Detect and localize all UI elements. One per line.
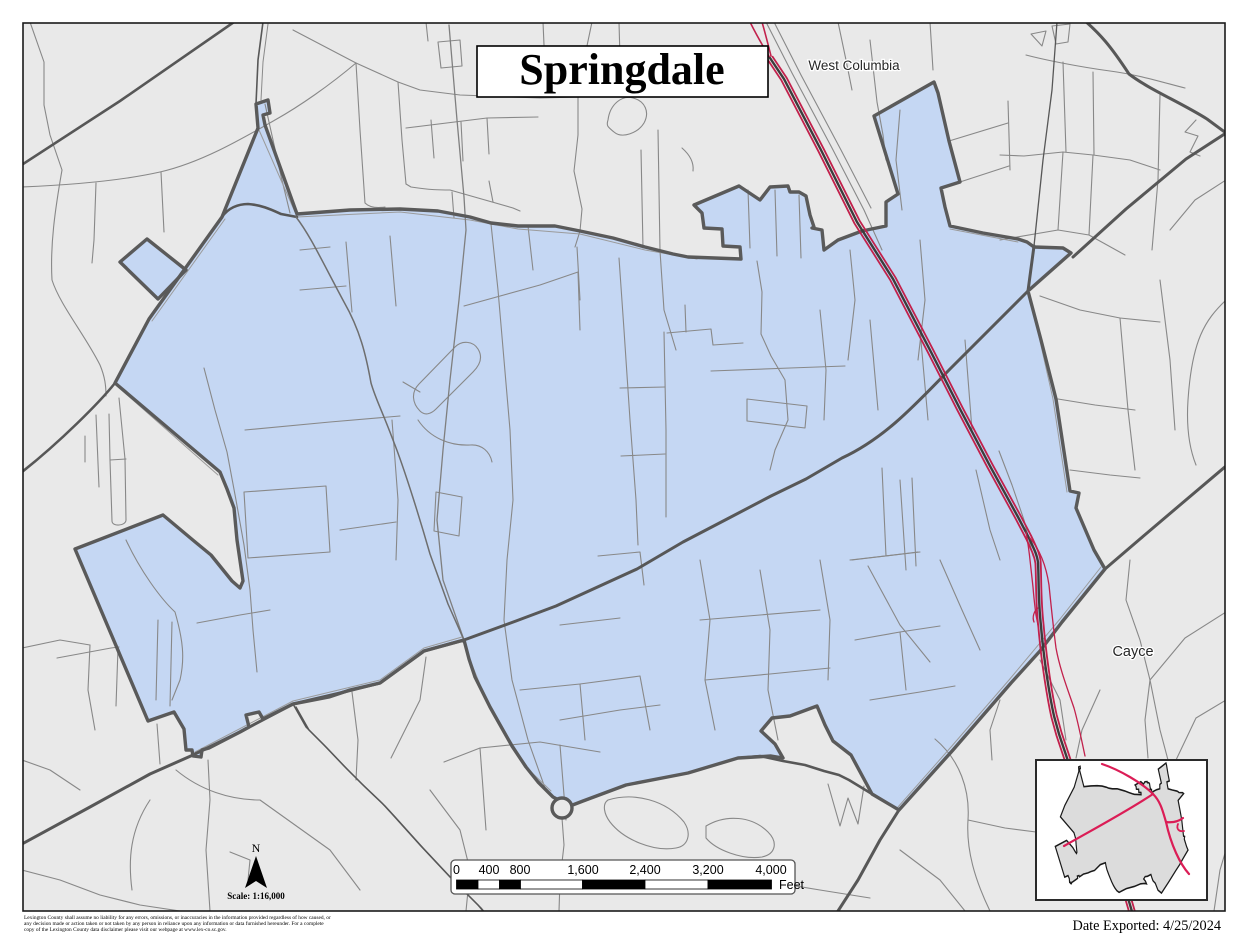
svg-text:Springdale: Springdale <box>519 45 724 94</box>
svg-text:4,000: 4,000 <box>755 863 786 877</box>
svg-text:1,600: 1,600 <box>567 863 598 877</box>
svg-text:Lexington County shall assume: Lexington County shall assume no liabili… <box>24 914 331 921</box>
svg-text:any decision made or action ta: any decision made or action taken or not… <box>24 920 324 927</box>
svg-text:Scale: 1:16,000: Scale: 1:16,000 <box>227 891 285 901</box>
svg-text:400: 400 <box>479 863 500 877</box>
svg-text:2,400: 2,400 <box>629 863 660 877</box>
svg-text:800: 800 <box>510 863 531 877</box>
svg-text:3,200: 3,200 <box>692 863 723 877</box>
svg-text:0: 0 <box>453 863 460 877</box>
svg-text:Date Exported: 4/25/2024: Date Exported: 4/25/2024 <box>1073 918 1222 934</box>
svg-text:N: N <box>252 841 261 855</box>
svg-text:West Columbia: West Columbia <box>808 58 900 73</box>
svg-text:copy of the Lexington County d: copy of the Lexington County data discla… <box>24 926 227 933</box>
svg-text:Feet: Feet <box>779 878 805 892</box>
svg-text:Cayce: Cayce <box>1112 644 1153 660</box>
